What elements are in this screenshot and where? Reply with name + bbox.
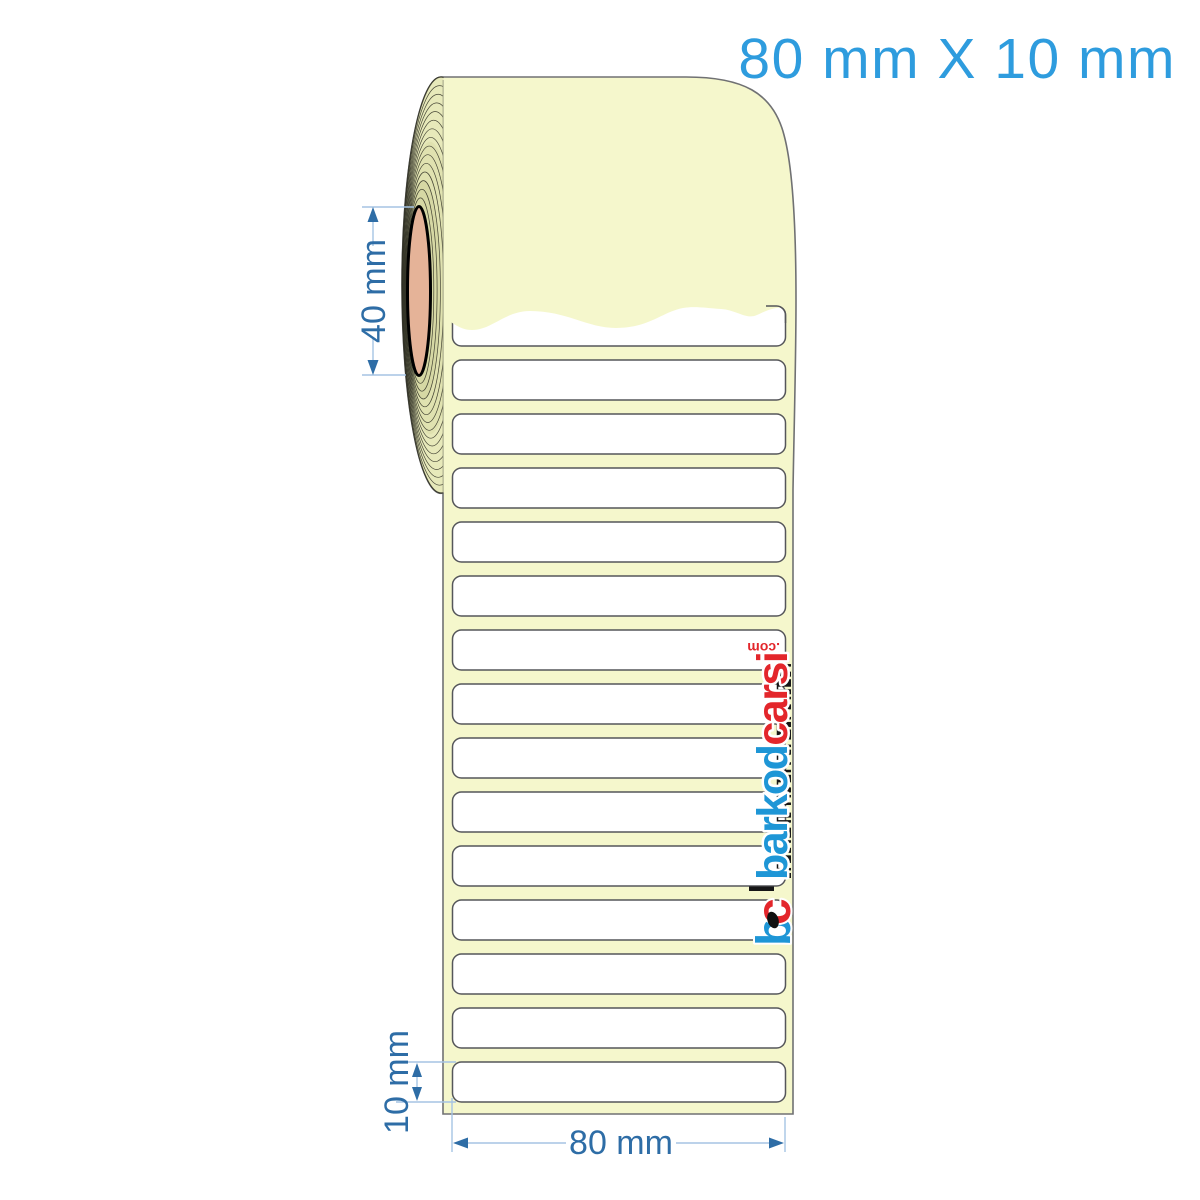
label-width-label: 80 mm	[569, 1124, 673, 1162]
arrow-left-icon	[453, 1138, 468, 1149]
label-sticker	[453, 360, 786, 400]
label-sticker	[453, 792, 786, 832]
roll-core	[408, 207, 431, 376]
page-title: 80 mm X 10 mm	[738, 27, 1176, 91]
label-height-label: 10 mm	[378, 1030, 416, 1134]
arrow-right-icon	[769, 1138, 784, 1149]
label-roll-illustration: b c barkodcarsi .com 40 mm 10 mm 80 mm 8…	[0, 0, 1200, 1200]
label-sticker	[453, 576, 786, 616]
product-image: b c barkodcarsi .com 40 mm 10 mm 80 mm 8…	[0, 0, 1200, 1200]
label-sticker	[453, 738, 786, 778]
brand-word-red: carsi	[749, 653, 797, 746]
core-diameter-label: 40 mm	[355, 239, 393, 343]
label-sticker	[453, 414, 786, 454]
brand-word-blue: barkod	[749, 746, 797, 880]
brand-watermark: b c barkodcarsi .com	[747, 640, 801, 946]
brand-divider	[749, 887, 774, 892]
brand-tld: .com	[747, 640, 780, 656]
label-sticker	[453, 846, 786, 886]
label-sticker	[453, 630, 786, 670]
label-sticker	[453, 900, 786, 940]
label-sticker	[453, 468, 786, 508]
label-sticker	[453, 954, 786, 994]
label-sticker	[453, 522, 786, 562]
label-sticker	[453, 1062, 786, 1102]
label-sticker	[453, 684, 786, 724]
arrow-down-icon	[368, 360, 379, 375]
arrow-up-icon	[368, 207, 379, 222]
labels-group	[453, 306, 786, 1102]
brand-wordmark: barkodcarsi	[749, 653, 797, 880]
label-sticker	[453, 1008, 786, 1048]
